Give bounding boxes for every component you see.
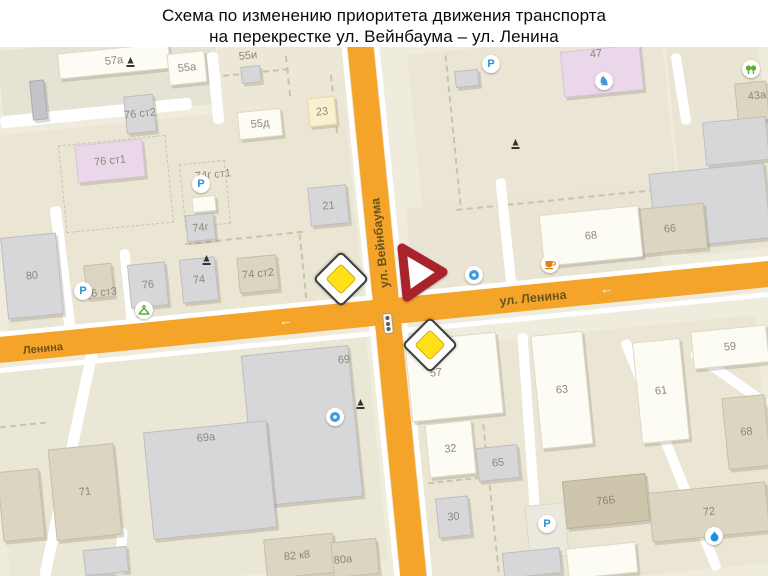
oneway-arrow-icon: ← — [599, 280, 613, 296]
building: 23 — [307, 96, 338, 128]
building: 76 ст2 — [123, 94, 157, 135]
priority-road-sign-inner — [325, 263, 356, 294]
building: 71 — [48, 443, 123, 541]
building — [0, 468, 45, 542]
oneway-arrow-icon: ← — [278, 312, 292, 328]
building: 74г — [185, 213, 217, 243]
title-line-1: Схема по изменению приоритета движения т… — [0, 5, 768, 26]
building: 32 — [424, 420, 476, 478]
building: 74 ст2 — [236, 254, 279, 294]
building: 76 ст1 — [74, 139, 145, 184]
building-label: 55д — [250, 117, 270, 131]
building-label: 72 — [702, 505, 715, 518]
building-label: 63 — [555, 383, 568, 396]
building: 21 — [307, 184, 350, 227]
building: 74 — [179, 256, 219, 303]
building-label: 76 — [141, 278, 154, 291]
kindergarten-icon: ♞ — [595, 72, 613, 90]
building-label: 74г — [192, 221, 209, 235]
building-label: 65 — [491, 456, 504, 469]
building-label: 76 ст1 — [93, 153, 126, 168]
building-label: 74 ст2 — [241, 266, 274, 281]
building: 59 — [690, 324, 768, 369]
give-way-sign — [394, 240, 452, 304]
building-label: 76Б — [596, 494, 617, 508]
monument-icon — [201, 254, 212, 266]
building — [502, 547, 562, 576]
title-line-2: на перекрестке ул. Вейнбаума – ул. Ленин… — [0, 26, 768, 47]
parking-icon: P — [538, 515, 556, 533]
building — [566, 542, 639, 576]
building — [83, 546, 129, 576]
building: 55д — [237, 108, 284, 140]
building: 55а — [167, 50, 208, 86]
building — [191, 195, 216, 213]
monument-icon — [125, 56, 136, 68]
building-label: 21 — [322, 199, 335, 212]
park-icon — [742, 60, 760, 78]
monument-icon — [510, 138, 521, 150]
parking-icon: P — [74, 282, 92, 300]
parking-icon: P — [192, 175, 210, 193]
building: 68 — [722, 394, 768, 470]
building-label: 71 — [78, 485, 91, 498]
building: 66 — [632, 203, 708, 256]
building-label: 32 — [444, 442, 457, 455]
cafe-icon — [541, 255, 559, 273]
building-label: 30 — [447, 510, 460, 523]
building-label: 68 — [584, 229, 597, 242]
building-label: 66 — [663, 222, 676, 235]
poi-blue-icon — [326, 408, 344, 426]
building-label: 80 — [25, 269, 38, 282]
building-label: 61 — [654, 384, 667, 397]
title: Схема по изменению приоритета движения т… — [0, 0, 768, 47]
building-label: 59 — [723, 340, 736, 353]
building: 65 — [475, 444, 520, 482]
parking-icon: P — [482, 55, 500, 73]
building: 80 — [0, 232, 64, 319]
building — [454, 69, 480, 88]
building — [702, 116, 768, 166]
building: 63 — [530, 331, 593, 450]
poi-blue-icon — [465, 266, 483, 284]
hanger-icon — [135, 301, 153, 319]
monument-icon — [355, 398, 366, 410]
map: ул. ЛенинаЛенинаул. Вейнбаума57а55а76 ст… — [0, 0, 768, 576]
priority-road-sign-inner — [414, 329, 445, 360]
building: 76Б — [562, 473, 650, 529]
building-label: 23 — [315, 105, 328, 118]
traffic-light-icon — [382, 313, 394, 335]
building: 61 — [632, 338, 690, 444]
building-label: 74 — [192, 273, 205, 286]
gas-flame-icon — [705, 527, 723, 545]
building-label: 57а — [104, 54, 123, 68]
building — [240, 65, 262, 84]
building-label: 68 — [740, 425, 753, 438]
building-label: 55а — [177, 61, 196, 75]
building: 30 — [435, 495, 472, 538]
building-label: 76 ст2 — [124, 106, 157, 121]
